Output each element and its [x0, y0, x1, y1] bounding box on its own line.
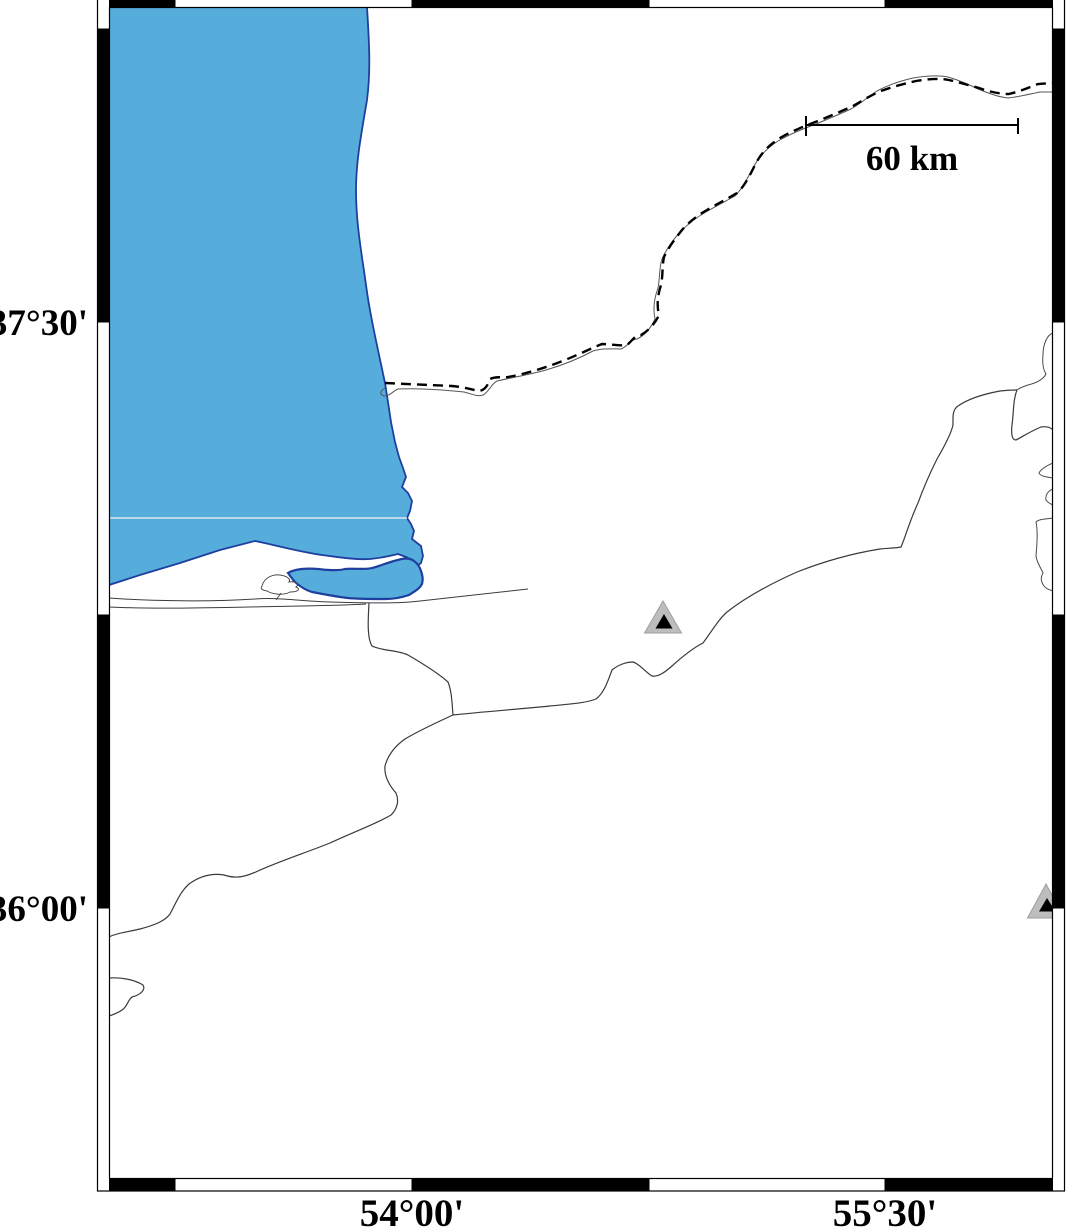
river-east-branch [453, 390, 1017, 715]
gorgan-bay-polygon [288, 559, 423, 599]
coastal-line-south [109, 604, 366, 608]
scale-bar [806, 116, 1018, 136]
scale-bar-label: 60 km [866, 139, 958, 178]
frame-black-segments-left [97, 29, 109, 908]
frame-black-segments-right [1053, 29, 1065, 908]
border-river-line [381, 76, 1053, 396]
frame-black-segments-bottom [109, 1179, 1053, 1191]
x-axis-label-5530: 55°30' [833, 1192, 937, 1229]
river-bay-outlet [368, 603, 453, 715]
y-axis-label-3730: 37°30' [0, 303, 88, 344]
station-triangle-1 [645, 601, 682, 633]
map-content: 60 km [109, 7, 1065, 1016]
right-edge-water-contours [1017, 333, 1053, 591]
river-east-edge [1012, 390, 1053, 440]
map-figure: 60 km [0, 0, 1066, 1229]
caspian-sea-polygon [109, 7, 423, 585]
x-axis-label-5400: 54°00' [360, 1192, 464, 1229]
y-axis-label-3600: 36°00' [0, 889, 88, 930]
map-canvas: 60 km [0, 0, 1066, 1229]
river-south-branch [109, 715, 453, 937]
river-left-edge-loop [109, 978, 144, 1016]
frame-black-segments-top [109, 0, 1053, 7]
